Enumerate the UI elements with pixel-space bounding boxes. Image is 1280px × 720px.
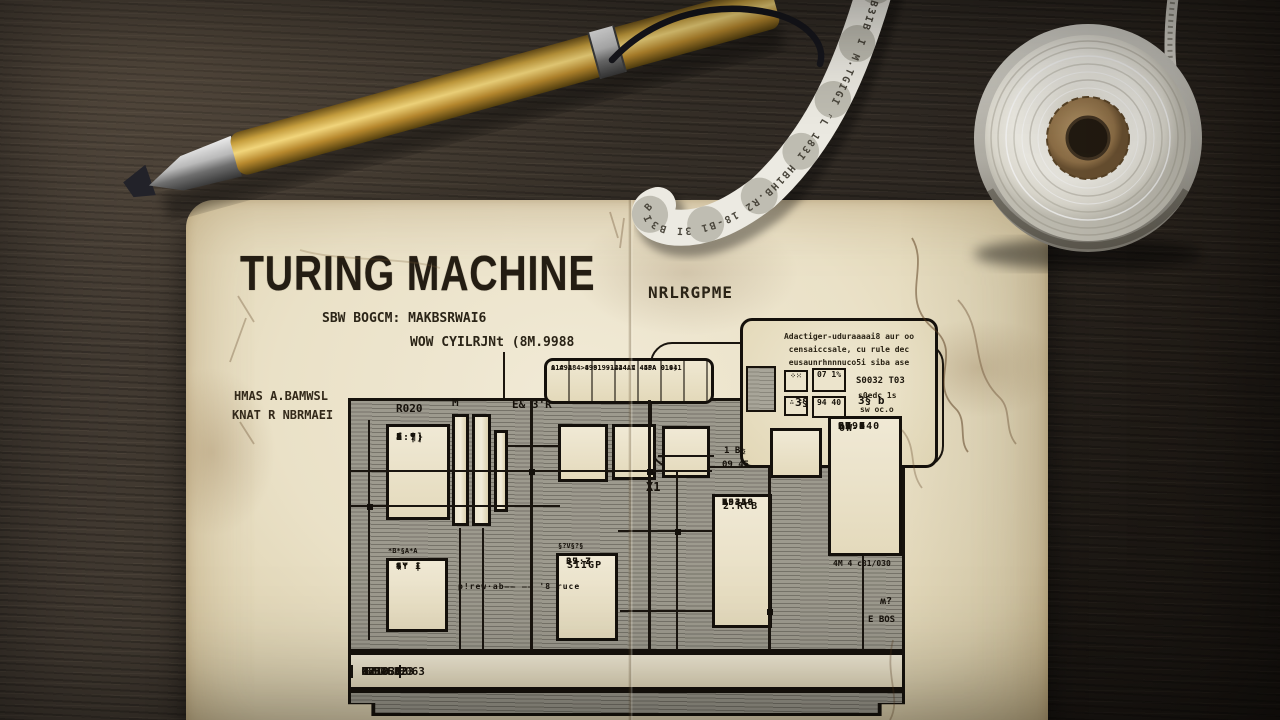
desk-scene: TURING MACHINE SBW BOGCM: MAKBSRWAI6 WOW… [0, 0, 1280, 720]
tape-spool [0, 0, 1280, 720]
